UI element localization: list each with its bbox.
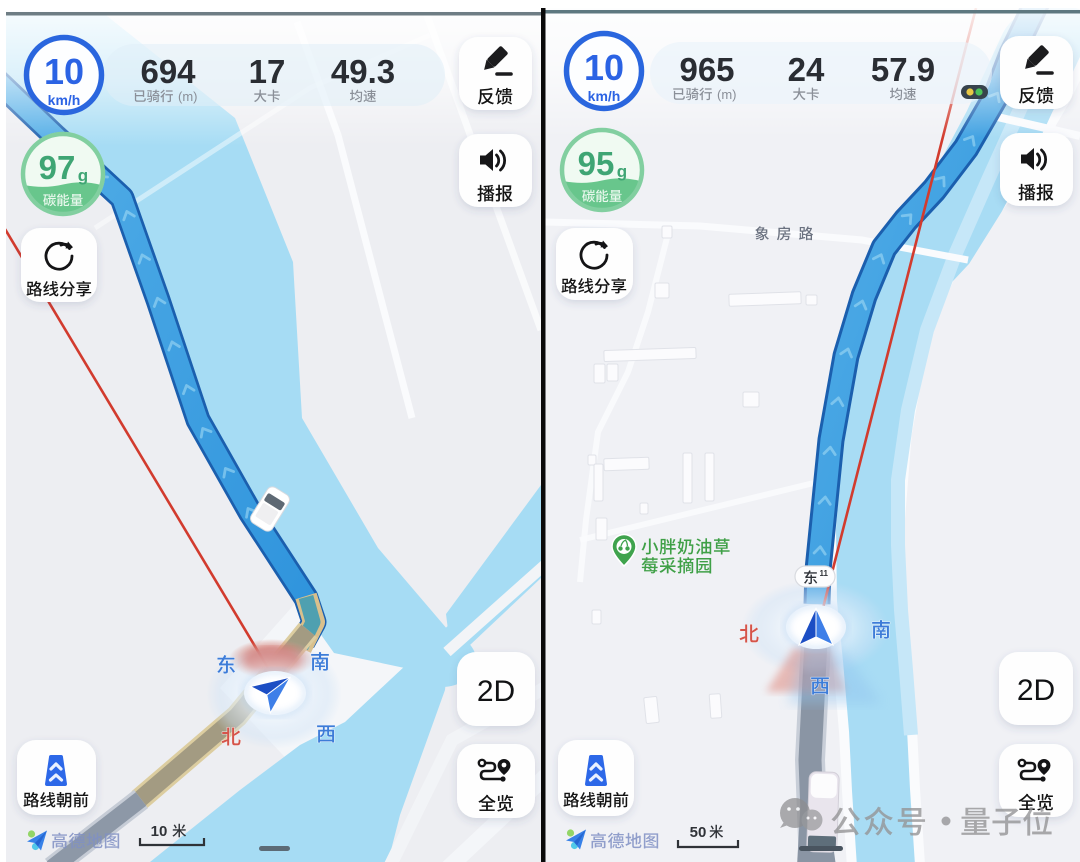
svg-text:17: 17 xyxy=(249,53,286,90)
svg-text:97: 97 xyxy=(39,149,76,186)
svg-text:694: 694 xyxy=(140,53,196,90)
svg-text:10: 10 xyxy=(44,51,84,92)
svg-text:km/h: km/h xyxy=(48,92,81,108)
svg-text:2D: 2D xyxy=(1017,674,1055,707)
svg-text:g: g xyxy=(78,166,88,185)
svg-text:g: g xyxy=(617,162,627,181)
svg-text:49.3: 49.3 xyxy=(331,53,395,90)
svg-text:km/h: km/h xyxy=(588,88,621,104)
svg-text:10: 10 xyxy=(151,823,168,840)
svg-text:11: 11 xyxy=(820,569,829,578)
svg-text:2D: 2D xyxy=(477,675,515,708)
svg-text:24: 24 xyxy=(788,51,825,88)
svg-text:965: 965 xyxy=(679,51,734,88)
svg-text:(m): (m) xyxy=(717,87,737,102)
svg-text:57.9: 57.9 xyxy=(871,51,935,88)
svg-text:95: 95 xyxy=(578,145,615,182)
svg-text:(m): (m) xyxy=(178,89,198,104)
svg-text:10: 10 xyxy=(584,47,624,88)
svg-text:50: 50 xyxy=(690,824,707,841)
